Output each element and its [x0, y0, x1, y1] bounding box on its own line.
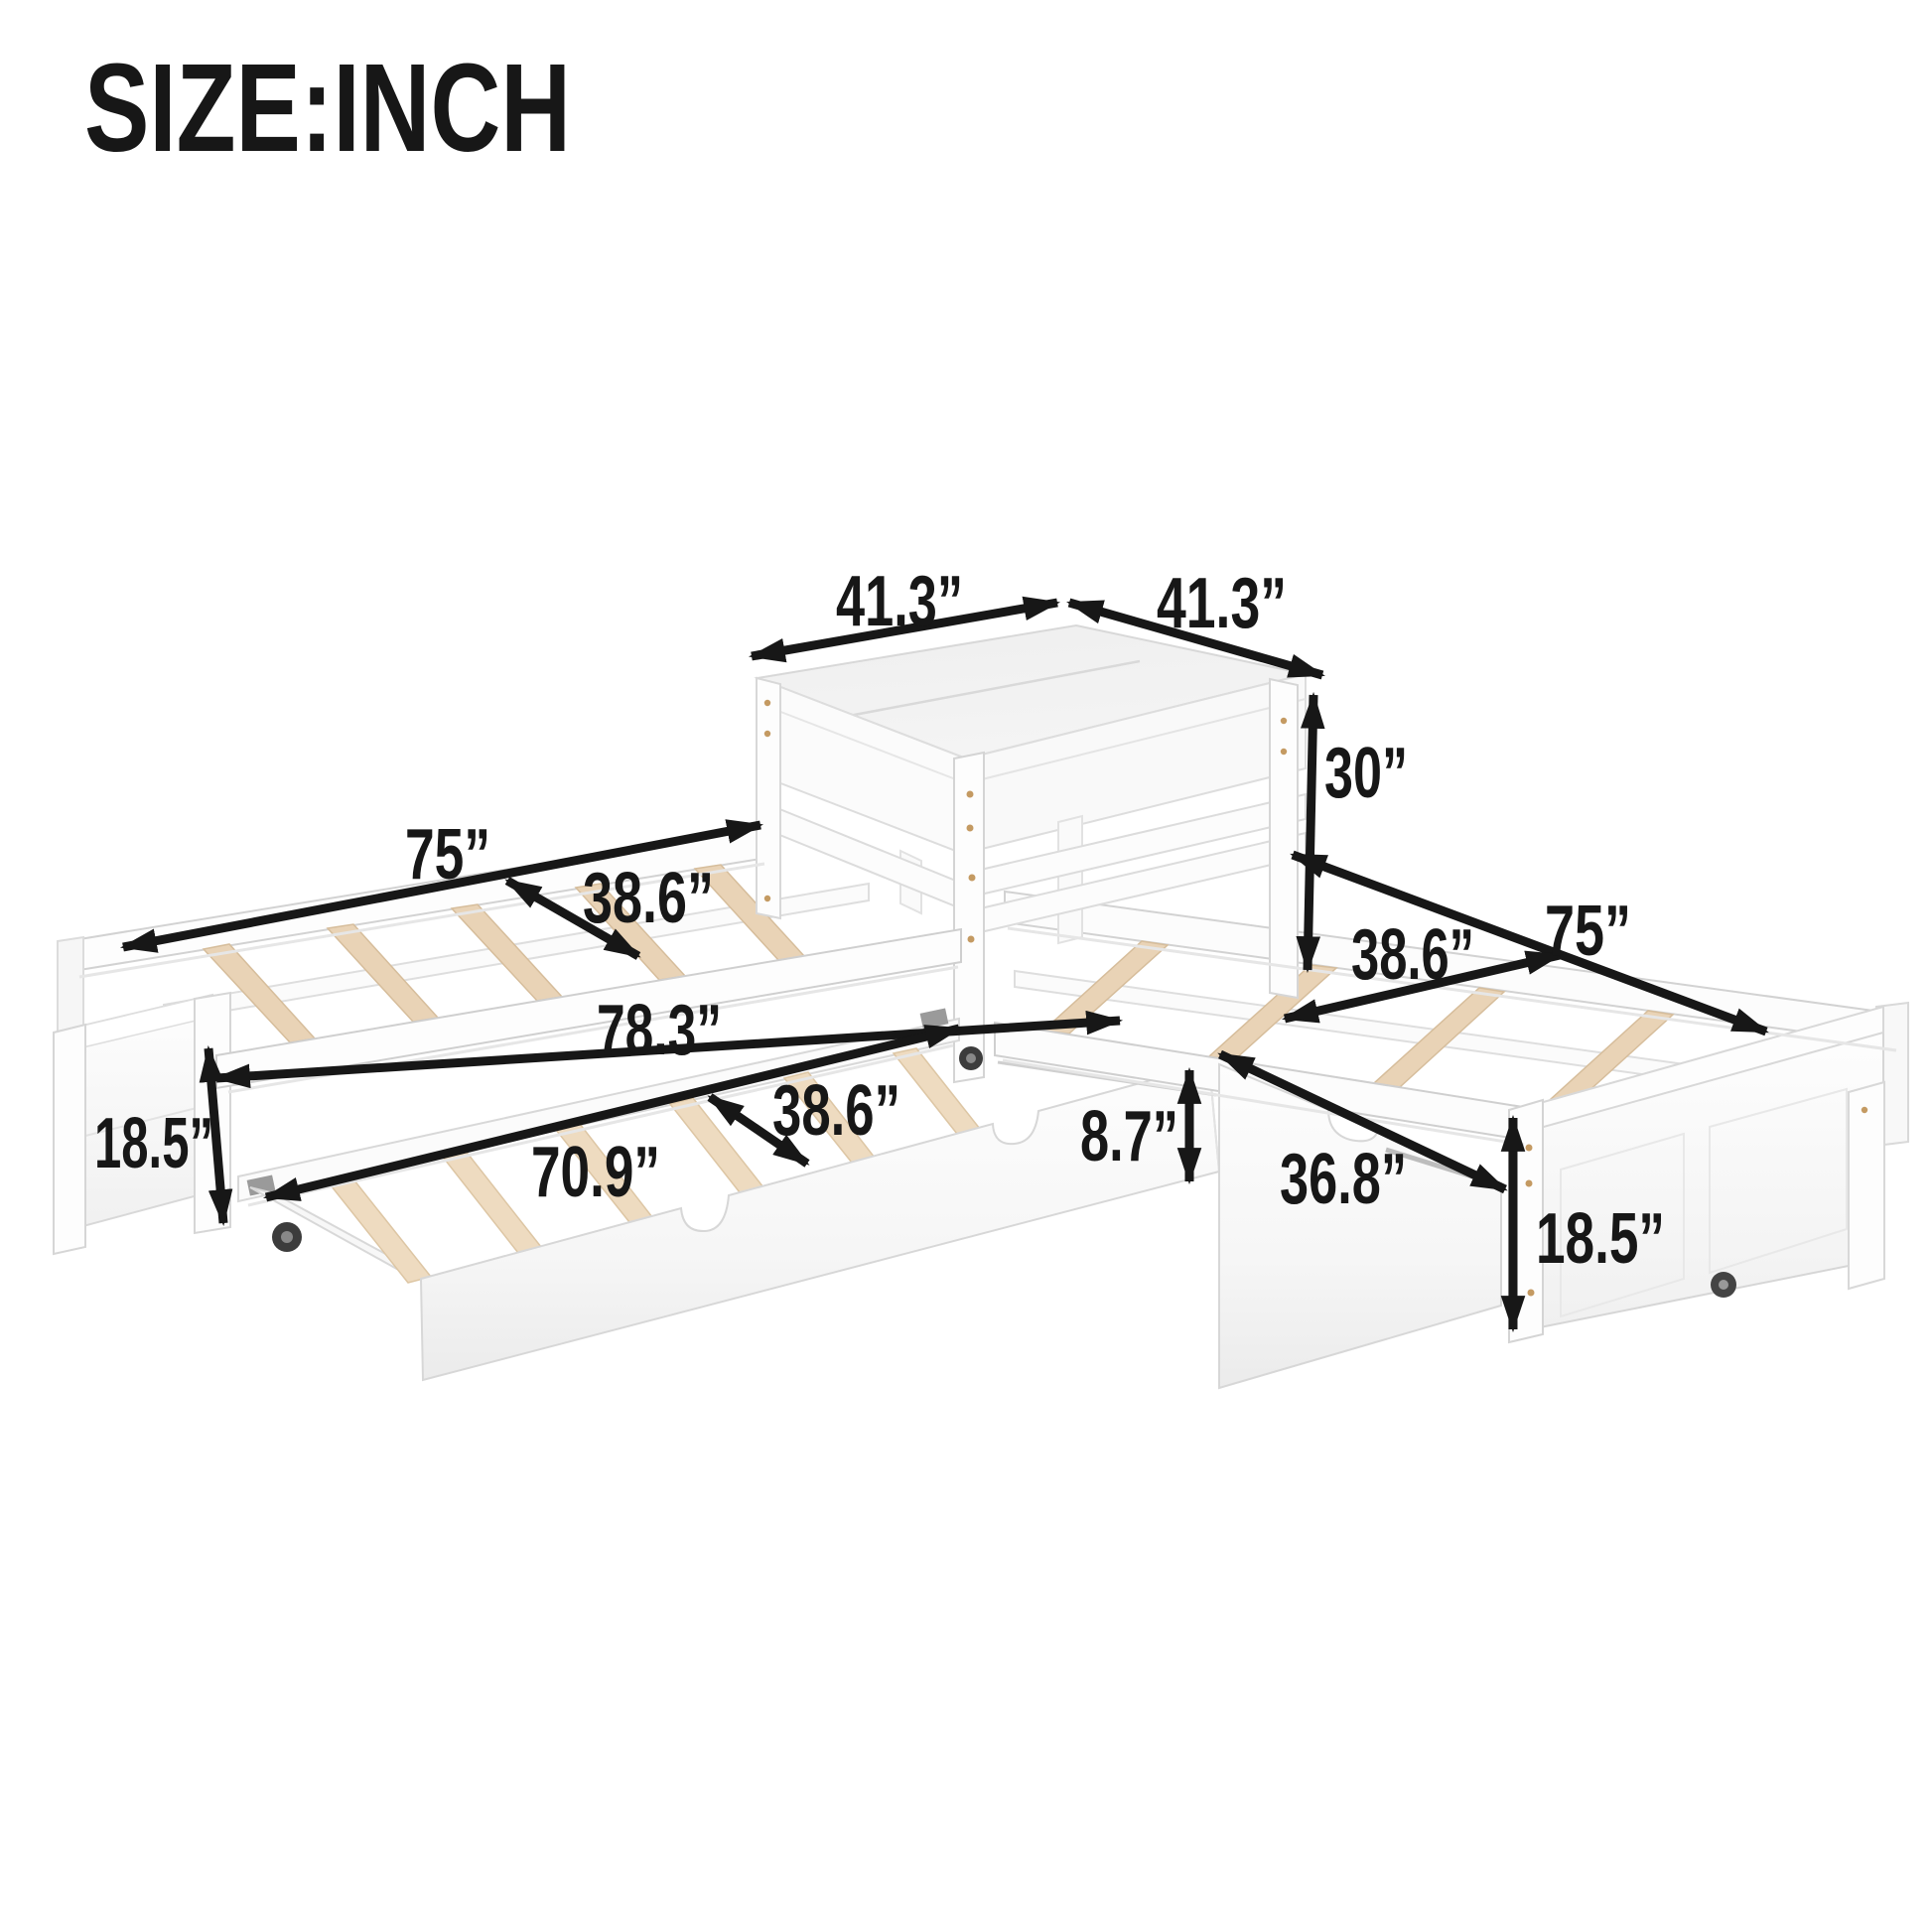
svg-text:8.7”: 8.7”	[1080, 1097, 1178, 1176]
svg-text:18.5”: 18.5”	[94, 1104, 213, 1183]
svg-text:SIZE:INCH: SIZE:INCH	[84, 38, 571, 178]
svg-text:38.6”: 38.6”	[583, 859, 714, 938]
svg-text:18.5”: 18.5”	[1536, 1199, 1665, 1279]
svg-text:36.8”: 36.8”	[1280, 1140, 1407, 1219]
svg-text:78.3”: 78.3”	[597, 991, 722, 1070]
svg-text:70.9”: 70.9”	[531, 1133, 660, 1212]
svg-text:38.6”: 38.6”	[1351, 915, 1474, 995]
svg-text:41.3”: 41.3”	[1157, 564, 1287, 643]
svg-text:30”: 30”	[1324, 734, 1408, 813]
svg-text:41.3”: 41.3”	[836, 562, 963, 641]
svg-text:75”: 75”	[405, 815, 490, 895]
svg-text:38.6”: 38.6”	[772, 1071, 900, 1151]
svg-text:75”: 75”	[1545, 892, 1631, 971]
